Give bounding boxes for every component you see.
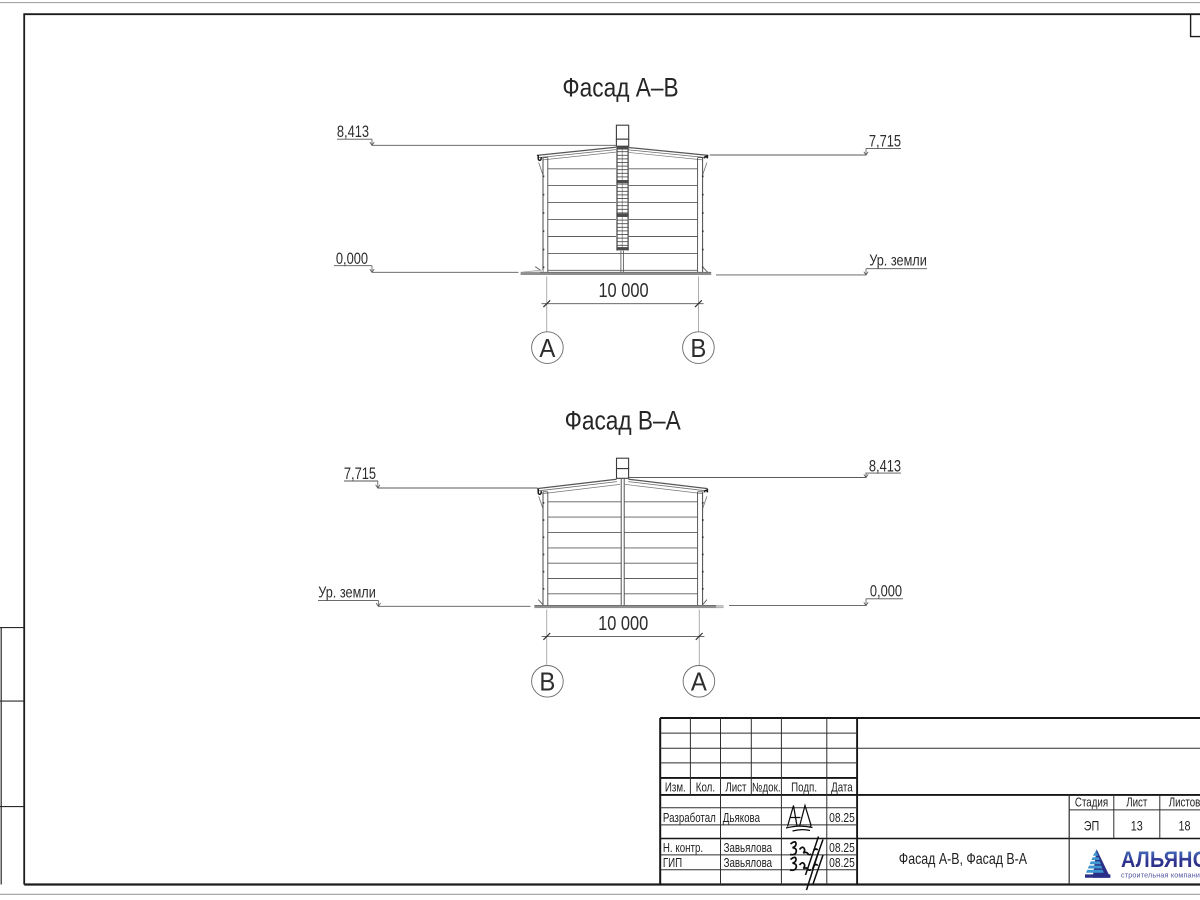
svg-text:Разработал: Разработал	[663, 812, 716, 825]
svg-text:18: 18	[1178, 818, 1190, 833]
svg-text:Завьялова: Завьялова	[724, 857, 773, 870]
svg-text:10 000: 10 000	[598, 278, 648, 301]
svg-text:строительная компания: строительная компания	[1121, 870, 1200, 879]
svg-text:Лист: Лист	[1126, 797, 1147, 810]
svg-text:Ур. земли: Ур. земли	[318, 585, 376, 602]
svg-text:Ур. земли: Ур. земли	[869, 252, 927, 269]
svg-text:08.25: 08.25	[829, 812, 855, 825]
svg-text:Подп.: Подп.	[791, 781, 817, 794]
svg-text:Листов: Листов	[1169, 797, 1200, 810]
svg-text:0,000: 0,000	[870, 583, 902, 601]
svg-text:В: В	[539, 668, 555, 697]
svg-text:А: А	[539, 334, 555, 363]
svg-text:ГИП: ГИП	[663, 857, 682, 870]
svg-text:Н. контр.: Н. контр.	[663, 842, 703, 855]
svg-text:АЛЬЯНС: АЛЬЯНС	[1121, 848, 1200, 872]
svg-text:08.25: 08.25	[829, 842, 855, 855]
svg-text:Изм.: Изм.	[665, 781, 686, 794]
svg-text:08.25: 08.25	[829, 857, 855, 870]
svg-text:Кол.: Кол.	[696, 781, 715, 794]
svg-text:Завьялова: Завьялова	[724, 842, 773, 855]
svg-text:Фасад А–В: Фасад А–В	[562, 73, 678, 103]
svg-text:В: В	[690, 334, 706, 363]
svg-text:Дата: Дата	[831, 781, 853, 794]
svg-text:Дьякова: Дьякова	[723, 812, 761, 825]
svg-text:10 000: 10 000	[598, 611, 648, 634]
svg-text:Фасад В–А: Фасад В–А	[565, 406, 682, 436]
svg-text:13: 13	[1131, 818, 1143, 833]
svg-text:№док.: №док.	[752, 781, 780, 794]
svg-text:А: А	[691, 668, 707, 697]
svg-text:ЭП: ЭП	[1084, 818, 1100, 833]
svg-text:Фасад А-В, Фасад В-А: Фасад А-В, Фасад В-А	[899, 849, 1028, 867]
svg-text:Стадия: Стадия	[1075, 797, 1108, 810]
svg-text:Лист: Лист	[725, 781, 746, 794]
